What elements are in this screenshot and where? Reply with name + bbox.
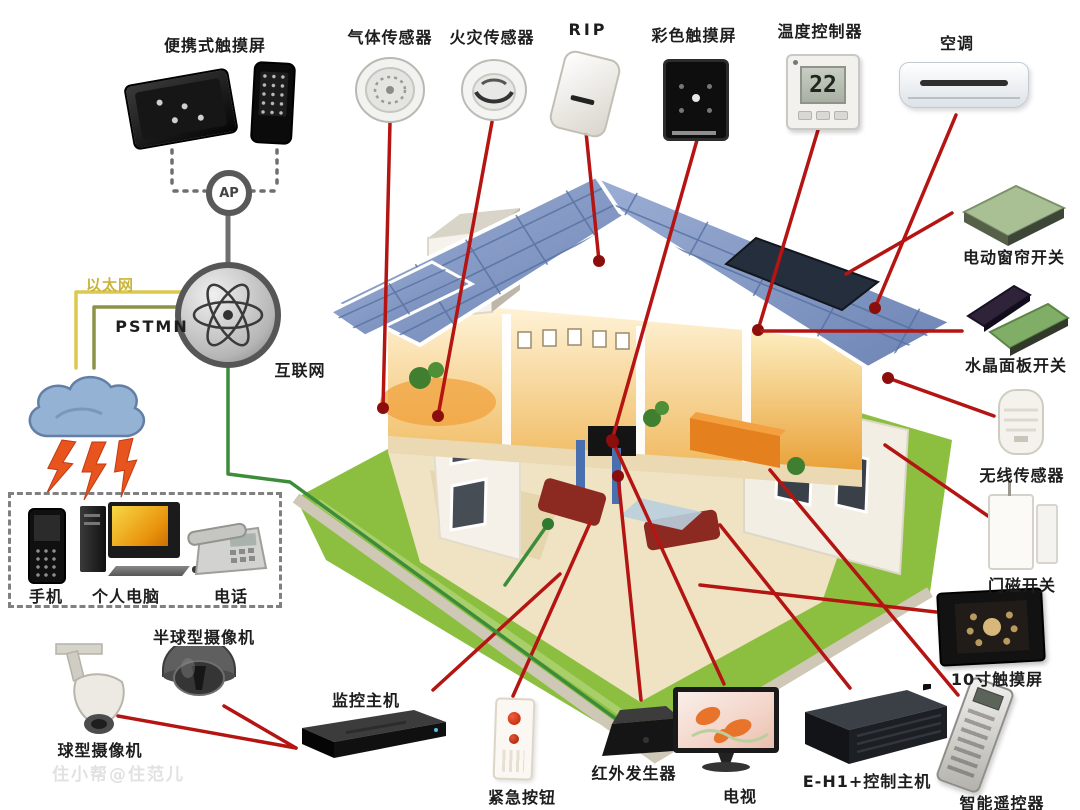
telephone-icon — [186, 514, 272, 588]
portable-tablet-icon — [128, 76, 234, 142]
label-ir-generator: 红外发生器 — [591, 760, 676, 784]
ap-node: AP — [206, 170, 252, 216]
mobile-phone-icon — [28, 508, 66, 584]
label-fire-sensor: 火灾传感器 — [449, 24, 534, 48]
label-smart-remote: 智能遥控器 — [959, 790, 1044, 810]
dome-camera-icon — [158, 646, 240, 714]
label-crystal-panel: 水晶面板开关 — [965, 352, 1067, 376]
label-door-magnet: 门磁开关 — [988, 572, 1056, 596]
emergency-button-icon — [494, 698, 534, 780]
label-color-touch: 彩色触摸屏 — [651, 22, 736, 46]
label-ball-camera: 球型摄像机 — [57, 737, 142, 761]
crystal-panel-icon — [960, 280, 1072, 362]
label-temp-controller: 温度控制器 — [777, 18, 862, 42]
eh1-host-icon — [795, 684, 951, 772]
smart-home-system-diagram: AP — [0, 0, 1080, 810]
thermostat-icon: 22 — [786, 54, 860, 130]
monitor-host-icon — [296, 706, 452, 772]
ball-camera-icon — [50, 640, 134, 748]
label-monitor-host: 监控主机 — [332, 687, 400, 711]
label-pstn: PSTMN — [115, 317, 188, 336]
label-pc: 个人电脑 — [92, 583, 160, 607]
label-portable-touch: 便携式触摸屏 — [164, 32, 266, 56]
thermostat-display: 22 — [800, 66, 846, 104]
label-wireless-sensor: 无线传感器 — [979, 462, 1064, 486]
color-touchscreen-icon — [663, 59, 729, 141]
label-eh1-host: E-H1+控制主机 — [803, 768, 932, 792]
label-air-conditioner: 空调 — [940, 30, 974, 54]
label-mobile-phone: 手机 — [29, 583, 63, 607]
label-tv: 电视 — [723, 783, 757, 807]
label-emergency: 紧急按钮 — [488, 784, 556, 808]
watermark: 住小帮@住范儿 — [52, 760, 185, 785]
label-touch10: 10寸触摸屏 — [951, 666, 1043, 690]
label-telephone: 电话 — [214, 583, 248, 607]
gas-sensor-icon — [354, 56, 426, 128]
air-conditioner-icon — [899, 62, 1029, 108]
portable-phone-icon — [252, 62, 294, 144]
ap-label: AP — [219, 186, 239, 201]
fire-sensor-icon — [460, 58, 528, 126]
label-internet: 互联网 — [274, 357, 325, 381]
wireless-sensor-icon — [992, 388, 1050, 462]
smart-remote-icon — [952, 680, 998, 790]
label-curtain-switch: 电动窗帘开关 — [963, 244, 1065, 268]
touch10-icon — [938, 590, 1044, 664]
label-rip: RIP — [569, 20, 608, 39]
tv-icon — [672, 686, 784, 778]
label-gas-sensor: 气体传感器 — [347, 24, 432, 48]
label-ethernet: 以太网 — [86, 274, 134, 295]
label-dome-camera: 半球型摄像机 — [153, 624, 255, 648]
rip-sensor-icon — [556, 54, 614, 134]
